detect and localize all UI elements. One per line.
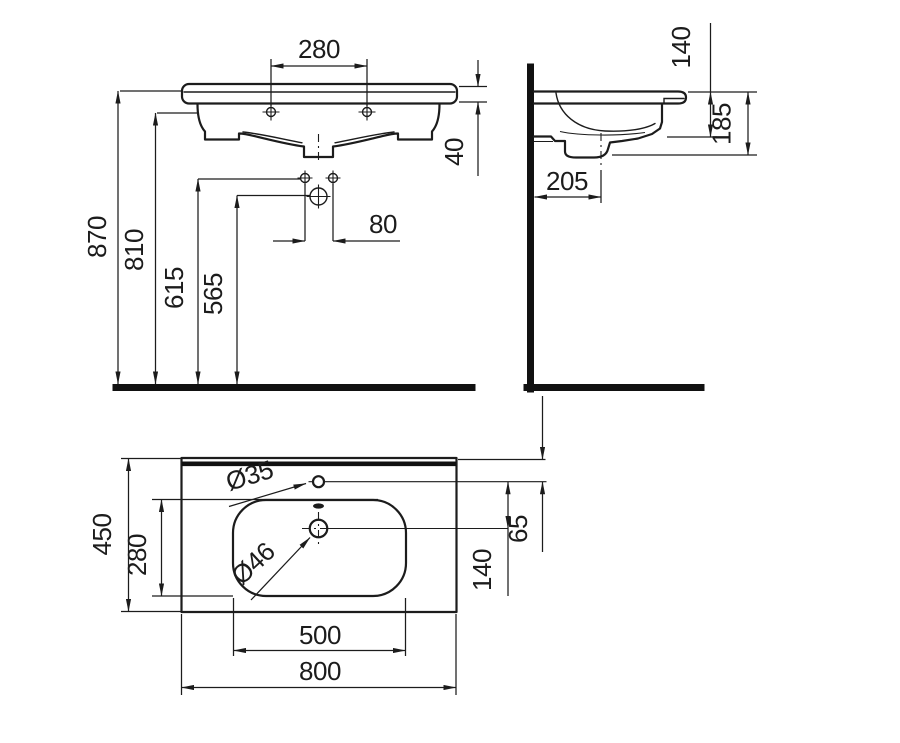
dimension-500-bowl-width: 500 (234, 598, 406, 656)
dim-label-870: 870 (82, 216, 112, 258)
dim-label-280-front: 280 (298, 34, 340, 64)
dimension-280-fixing-holes: 280 (271, 34, 367, 106)
bracket-hole-right (326, 171, 341, 186)
dim-label-d35: Ø35 (222, 454, 276, 497)
bracket-hole-center (307, 185, 331, 209)
dimension-615-floor-to-upper-bracket: 615 (159, 179, 300, 384)
bowl-profile-arc (556, 93, 655, 131)
tap-hole (309, 476, 325, 487)
basin-body-front (198, 104, 440, 157)
dim-label-615: 615 (159, 267, 189, 309)
dim-label-280-plan: 280 (122, 534, 152, 576)
bowl-bottom-line (560, 132, 645, 136)
technical-drawing-page: 280 40 870 810 615 (0, 0, 900, 743)
side-section-view: 140 185 205 (527, 23, 757, 389)
dim-label-40: 40 (439, 138, 469, 166)
front-elevation-view: 280 40 870 810 615 (82, 34, 487, 388)
dim-label-810: 810 (119, 229, 149, 271)
dim-label-450: 450 (87, 514, 117, 556)
washbasin-dimension-drawing: 280 40 870 810 615 (0, 0, 900, 743)
dim-label-205: 205 (546, 166, 588, 196)
dimension-565-floor-to-lower-bracket: 565 (198, 196, 310, 385)
label-drain-diameter: Ø46 (225, 536, 310, 600)
dimension-40-rim-thickness: 40 (439, 60, 487, 176)
dimension-810-floor-to-basin: 810 (119, 113, 198, 384)
dim-label-500: 500 (299, 620, 341, 650)
bracket-hole-left (298, 171, 313, 186)
dim-label-140-side: 140 (666, 27, 696, 69)
fixing-hole-right (359, 104, 376, 121)
plan-view: Ø35 Ø46 450 280 65 140 (87, 396, 547, 695)
basin-rim-front (182, 84, 457, 104)
dim-label-140-plan: 140 (467, 549, 497, 591)
overflow-slot (313, 503, 324, 508)
fixing-hole-left (263, 104, 280, 121)
dim-label-185: 185 (707, 103, 737, 145)
dim-label-800: 800 (299, 656, 341, 686)
dim-label-80: 80 (369, 209, 397, 239)
dimension-140-plan: 140 (467, 482, 508, 596)
dimension-205-side: 205 (535, 166, 602, 203)
dimension-80-bracket-holes: 80 (273, 184, 400, 241)
dim-label-565: 565 (198, 273, 228, 315)
